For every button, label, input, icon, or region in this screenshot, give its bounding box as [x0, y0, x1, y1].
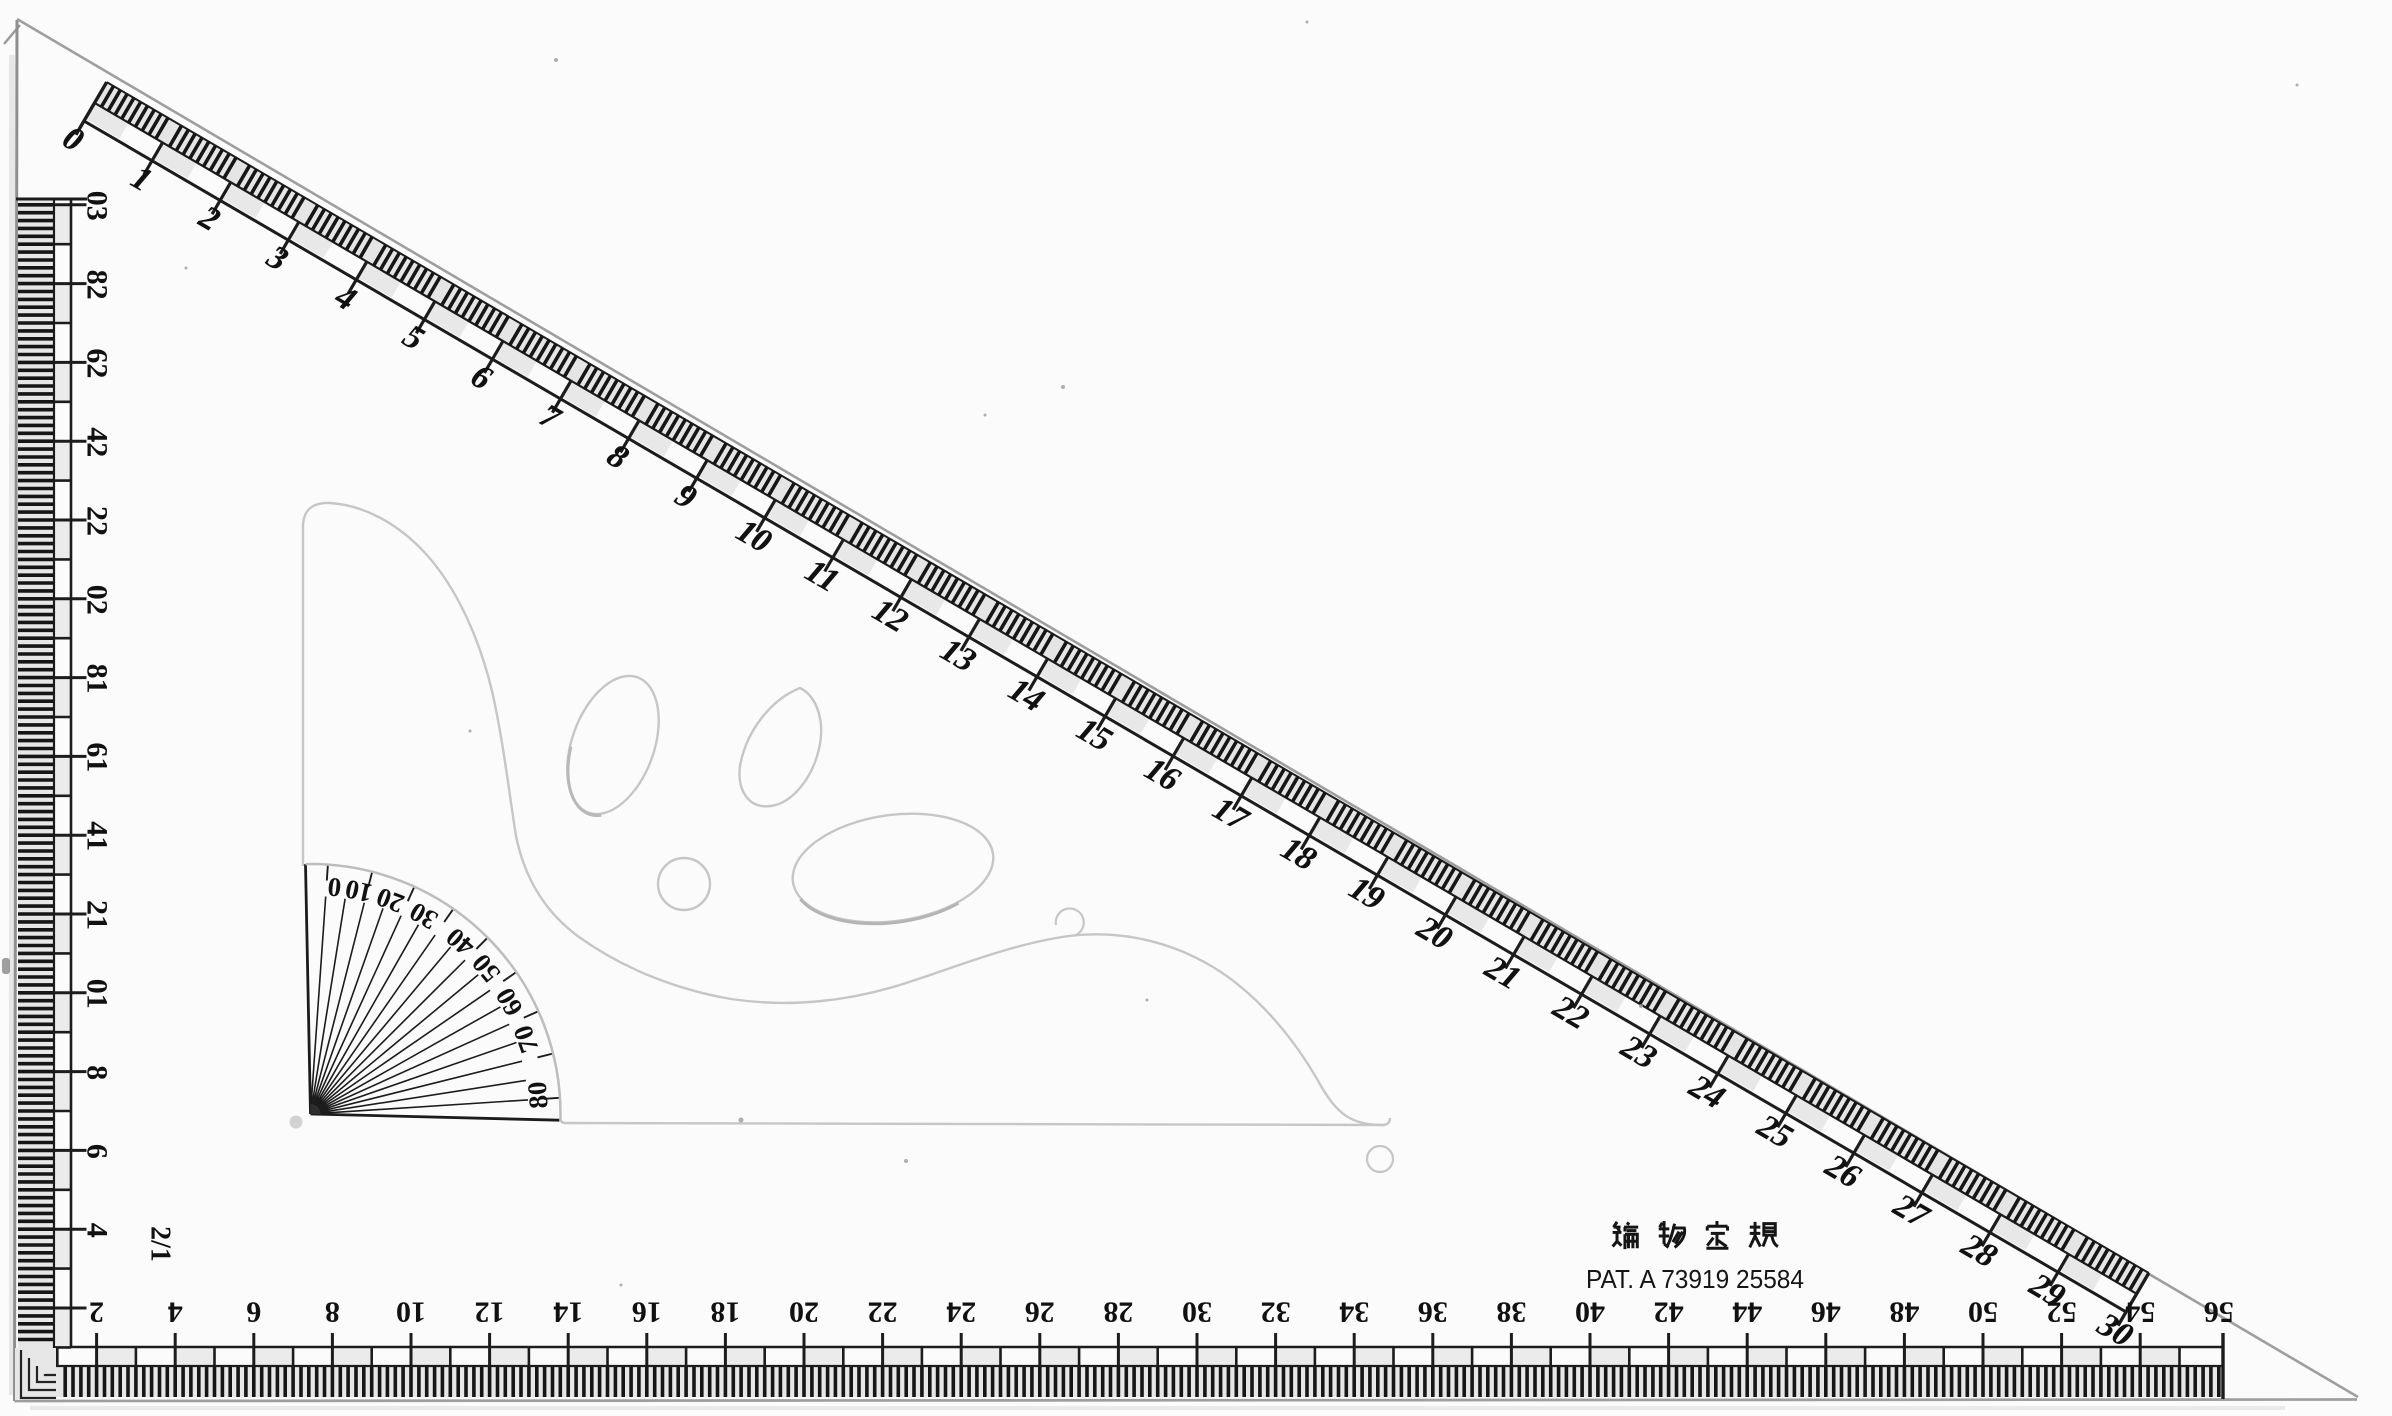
svg-text:32: 32	[1261, 1296, 1291, 1329]
svg-text:61: 61	[81, 742, 114, 772]
svg-text:24: 24	[946, 1296, 976, 1329]
svg-text:38: 38	[1496, 1296, 1526, 1329]
svg-text:PAT. A 73919 25584: PAT. A 73919 25584	[1586, 1264, 1804, 1294]
svg-text:4: 4	[81, 1223, 114, 1238]
svg-text:2/1: 2/1	[145, 1226, 176, 1262]
svg-text:21: 21	[81, 900, 114, 930]
svg-text:54: 54	[2125, 1296, 2155, 1329]
svg-text:62: 62	[81, 348, 114, 378]
svg-text:82: 82	[81, 270, 114, 300]
svg-text:22: 22	[81, 506, 114, 536]
svg-text:28: 28	[1103, 1296, 1133, 1329]
svg-text:44: 44	[1732, 1296, 1762, 1329]
svg-text:26: 26	[1025, 1296, 1055, 1329]
svg-text:12: 12	[475, 1296, 505, 1329]
svg-text:02: 02	[81, 585, 114, 615]
svg-text:03: 03	[81, 191, 114, 221]
svg-text:22: 22	[868, 1296, 898, 1329]
svg-text:8: 8	[325, 1296, 340, 1329]
svg-text:50: 50	[1968, 1296, 1998, 1329]
svg-text:14: 14	[553, 1296, 583, 1329]
svg-text:42: 42	[1654, 1296, 1684, 1329]
svg-text:30: 30	[1182, 1296, 1212, 1329]
svg-text:56: 56	[2204, 1296, 2234, 1329]
svg-text:40: 40	[1575, 1296, 1605, 1329]
svg-text:20: 20	[789, 1296, 819, 1329]
svg-text:4: 4	[168, 1296, 183, 1329]
svg-text:48: 48	[1889, 1296, 1919, 1329]
svg-text:42: 42	[81, 427, 114, 457]
svg-text:34: 34	[1339, 1296, 1369, 1329]
svg-text:6: 6	[246, 1296, 261, 1329]
svg-text:36: 36	[1418, 1296, 1448, 1329]
svg-text:10: 10	[396, 1296, 426, 1329]
svg-text:52: 52	[2047, 1296, 2077, 1329]
svg-text:16: 16	[632, 1296, 662, 1329]
svg-text:18: 18	[710, 1296, 740, 1329]
svg-text:6: 6	[81, 1144, 114, 1159]
svg-text:81: 81	[81, 664, 114, 694]
svg-text:41: 41	[81, 821, 114, 851]
svg-text:2: 2	[89, 1296, 104, 1329]
svg-text:8: 8	[81, 1065, 114, 1080]
svg-text:01: 01	[81, 979, 114, 1009]
svg-text:46: 46	[1811, 1296, 1841, 1329]
svg-text:80: 80	[522, 1080, 554, 1109]
